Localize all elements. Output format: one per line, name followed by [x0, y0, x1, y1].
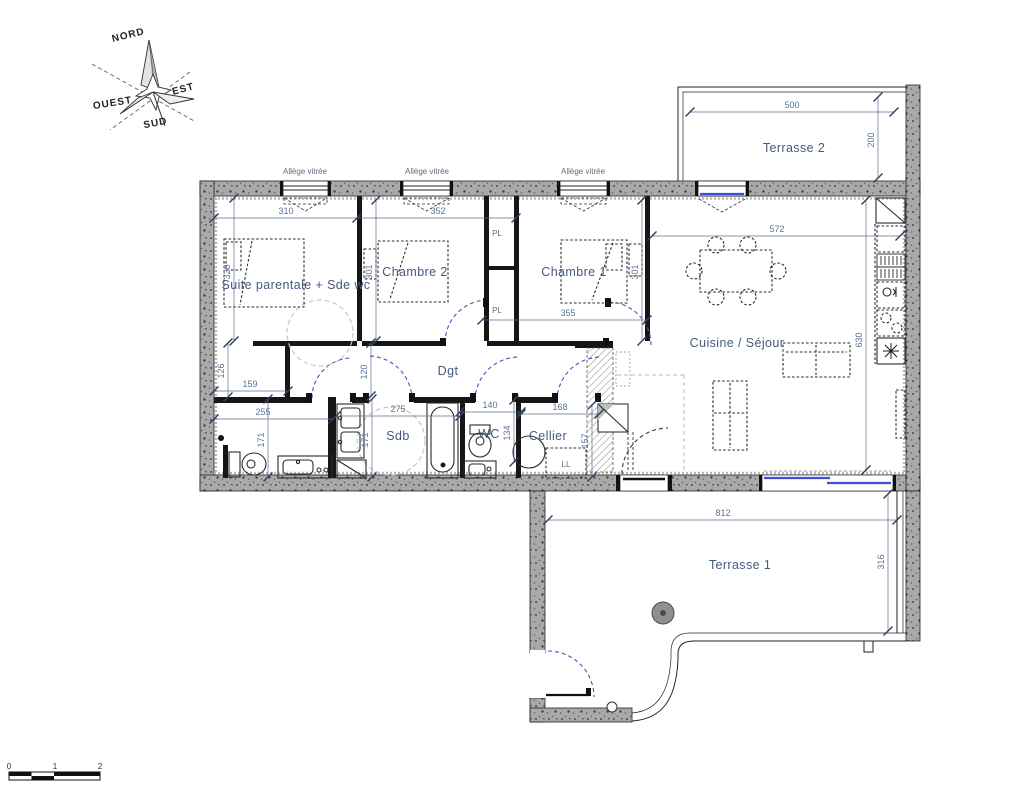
compass-east-label: EST — [171, 81, 196, 97]
placard-top-label: PL — [492, 229, 502, 238]
scale-bar: 0 1 2 — [7, 762, 103, 780]
kitchen-sink-icon — [877, 282, 905, 308]
hob-star-icon — [877, 338, 905, 364]
terrace1-gate — [530, 650, 594, 698]
ensuite-fixtures — [218, 435, 332, 478]
dim-terrasse1-width: 812 — [715, 508, 730, 518]
dim-wc-depth: 134 — [502, 425, 512, 440]
dim-ensuite-depth: 171 — [256, 432, 266, 447]
armchair — [713, 381, 747, 450]
floor-drain-icon — [218, 435, 224, 441]
floor-plan-page: PL PL L — [0, 0, 1015, 800]
dim-ch2-width: 352 — [430, 206, 445, 216]
bed-suite — [224, 239, 304, 307]
dim-sejour-width: 572 — [769, 224, 784, 234]
terrace1-floor-drain — [607, 602, 674, 712]
room-label-terrasse1: Terrasse 1 — [709, 558, 771, 572]
placard-bottom-label: PL — [492, 306, 502, 315]
oven-stack-icon — [877, 254, 905, 280]
floor-plan: PL PL L — [0, 0, 1015, 800]
dim-terrasse2-depth: 200 — [866, 132, 876, 147]
dim-ch1-width: 355 — [560, 308, 575, 318]
compass-south-label: SUD — [143, 116, 169, 131]
terrace1-railing — [632, 491, 906, 721]
window-labels: Allège vitrée Allège vitrée Allège vitré… — [283, 167, 606, 176]
room-labels: Suite parentale + Sde wc Chambre 2 Chamb… — [222, 141, 826, 572]
room-label-wc: WC — [478, 427, 500, 441]
scale-tick-0: 0 — [7, 762, 12, 771]
room-label-suite: Suite parentale + Sde wc — [222, 278, 371, 292]
dim-sejour-depth: 630 — [854, 332, 864, 347]
dim-alcove-depth: 126 — [216, 363, 226, 378]
scale-tick-1: 1 — [53, 762, 58, 771]
room-label-chambre2: Chambre 2 — [382, 265, 447, 279]
dim-terrasse1-depth: 316 — [876, 554, 886, 569]
cooktop-icon — [877, 310, 905, 336]
dim-dgt-width: 120 — [359, 364, 369, 379]
dim-sdb-depth: 171 — [360, 432, 370, 447]
kitchen-appliances — [875, 198, 905, 438]
window-3 — [557, 181, 610, 211]
room-label-terrasse2: Terrasse 2 — [763, 141, 825, 155]
compass-north-label: NORD — [111, 26, 146, 45]
allege-label-2: Allège vitrée — [405, 167, 450, 176]
dim-cellier-depth: 157 — [580, 433, 590, 448]
dim-suite-width: 310 — [278, 206, 293, 216]
turning-circle-suite — [287, 300, 353, 366]
dim-ch1-depth: 301 — [630, 264, 640, 279]
bathtub-icon — [427, 403, 458, 478]
technical-shaft — [587, 348, 633, 472]
sofa — [783, 343, 850, 377]
allege-label-1: Allège vitrée — [283, 167, 328, 176]
entry-door — [616, 428, 672, 491]
dim-cellier-width: 168 — [552, 402, 567, 412]
room-label-cuisine-sejour: Cuisine / Séjour — [690, 336, 785, 350]
compass-rose: NORD EST SUD OUEST — [92, 26, 196, 131]
dining-table — [686, 237, 786, 305]
scale-tick-2: 2 — [98, 762, 103, 771]
washing-machine-label: LL — [562, 460, 571, 469]
room-label-cellier: Cellier — [529, 429, 567, 443]
fridge-icon — [877, 226, 905, 252]
dim-wc-width: 140 — [482, 400, 497, 410]
room-label-dgt: Dgt — [438, 364, 459, 378]
corner-closet-icon — [876, 198, 905, 223]
dim-alcove-width: 159 — [242, 379, 257, 389]
allege-label-3: Allège vitrée — [561, 167, 606, 176]
dim-sdb-width: 275 — [390, 404, 405, 414]
room-label-sdb: Sdb — [386, 429, 409, 443]
room-label-chambre1: Chambre 1 — [541, 265, 606, 279]
terrace2-door — [695, 181, 749, 212]
dim-terrasse2-width: 500 — [784, 100, 799, 110]
